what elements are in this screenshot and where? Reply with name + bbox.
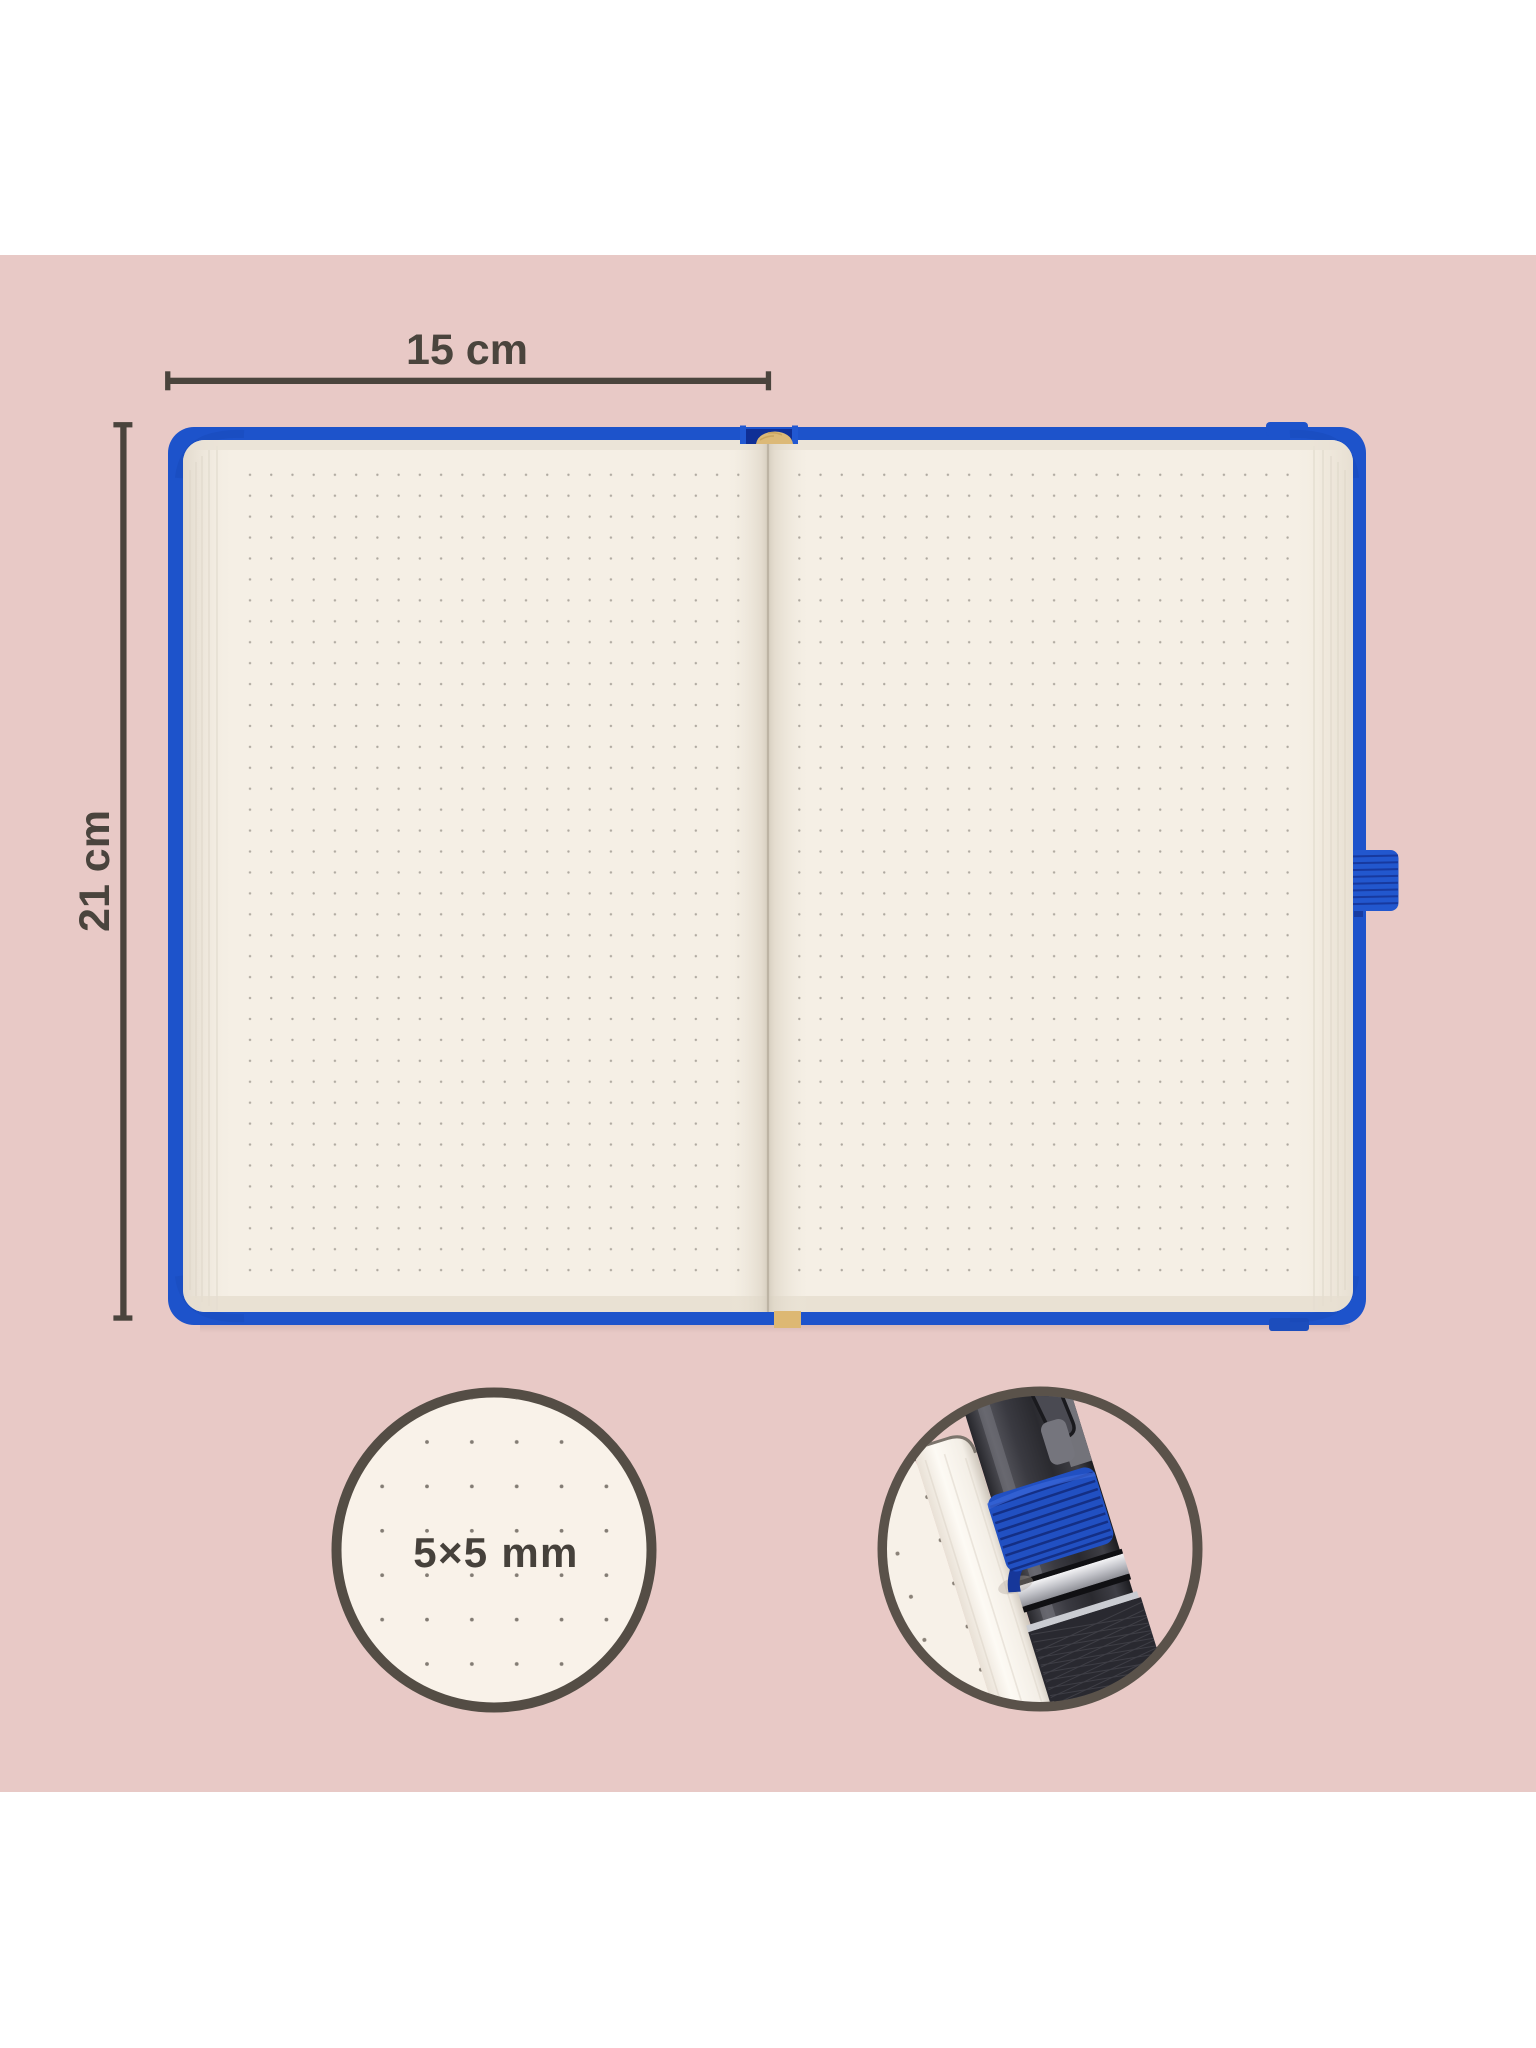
svg-text:15 cm: 15 cm (406, 326, 528, 374)
svg-text:5×5 mm: 5×5 mm (413, 1529, 578, 1576)
svg-text:21 cm: 21 cm (71, 810, 119, 932)
